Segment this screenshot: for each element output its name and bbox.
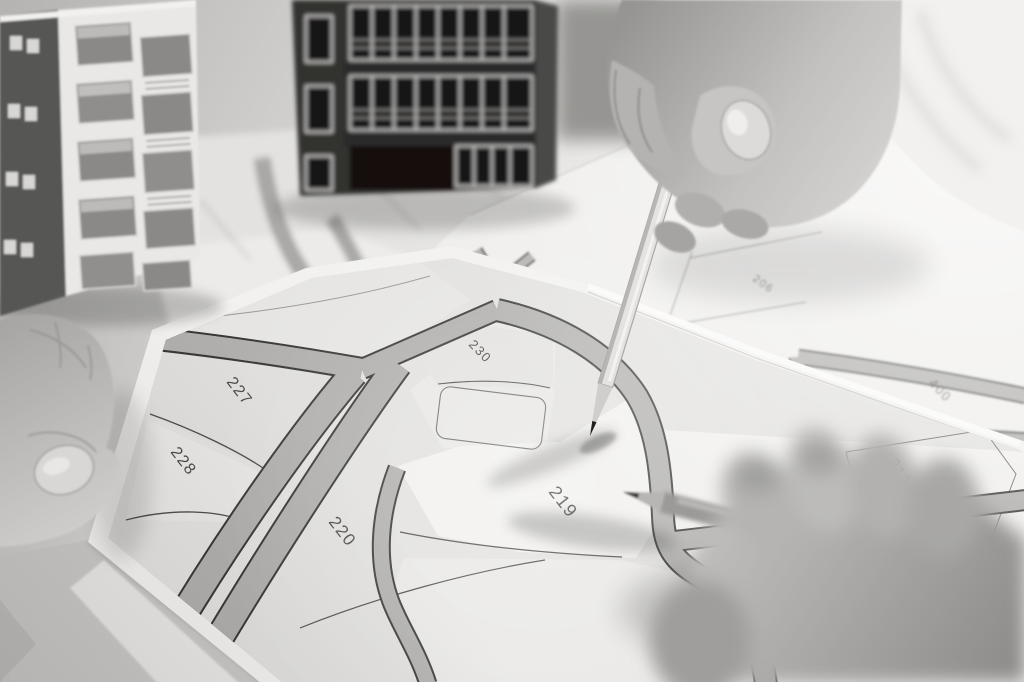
model-building-dark [292,0,558,196]
fingertip-shade-2 [798,440,842,476]
photo-canvas: 206 207 400 [0,0,1024,682]
blurred-fingertip-4 [908,458,980,558]
building-dark-window-bands [350,6,532,190]
model-building-light [0,0,200,316]
photo-cadastral-map-scene: 206 207 400 [0,0,1024,682]
fingertip-shade-1 [736,458,780,494]
building-dark-left-windows [306,16,332,190]
